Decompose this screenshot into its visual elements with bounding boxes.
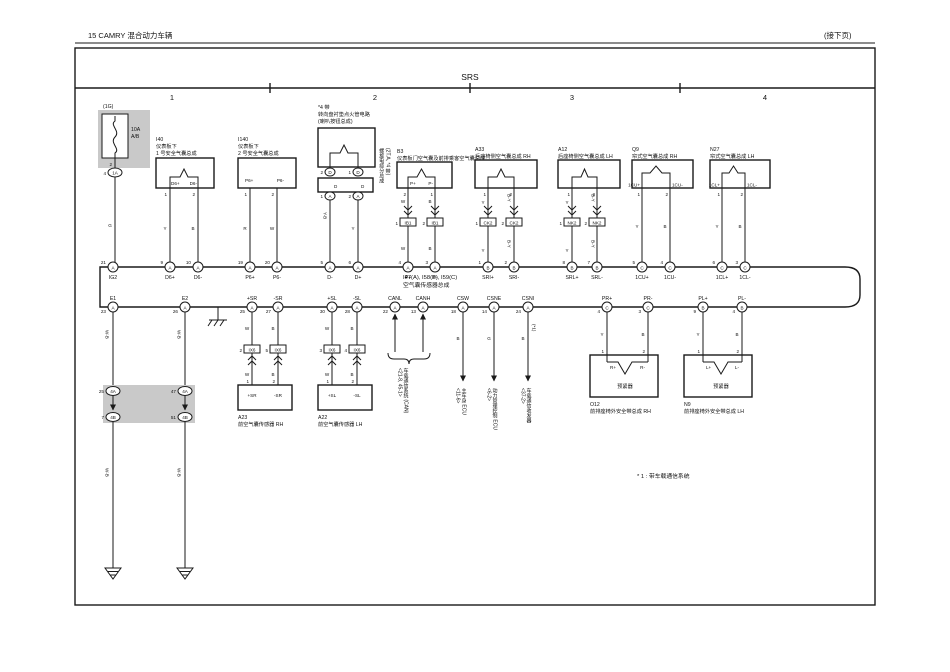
terminal-label: D	[334, 184, 338, 189]
terminal: PR+	[602, 296, 612, 302]
pin-num: 1	[717, 192, 720, 197]
wire-color: W-B	[104, 330, 110, 339]
terminal-label: D	[361, 184, 365, 189]
terminal: D+	[355, 275, 362, 281]
wire-color: Y-B	[322, 212, 328, 219]
component-label: 前排座椅外安全带总成 LH	[684, 407, 744, 415]
terminal-label: L-	[735, 365, 740, 370]
conn-num: 2	[501, 221, 504, 226]
pin-num: 2	[665, 192, 668, 197]
pin-num: 1	[637, 192, 640, 197]
wire-color: B	[191, 226, 194, 231]
spiral-cable-side-note: (2T.A, *4 带) 螺旋电缆分总成	[378, 148, 391, 183]
component-code: I140	[238, 137, 248, 143]
pin-num: 2	[736, 349, 739, 354]
component-label: 前空气囊传感器 LH	[318, 420, 363, 428]
pin-num: 4	[398, 260, 401, 265]
ground-symbol	[177, 568, 193, 579]
pin-num: 2	[403, 192, 406, 197]
component-code: N9	[684, 402, 691, 408]
wire-color: W-B	[176, 330, 182, 339]
terminal: PL-	[738, 296, 746, 302]
terminal: +SL	[327, 296, 336, 302]
fuse-conn-num: 4	[103, 171, 106, 176]
pin-num: 21	[101, 260, 107, 265]
conn-num: 25	[99, 389, 105, 394]
ecu-case-ground	[208, 307, 227, 326]
component-code: A33	[475, 147, 484, 153]
conn-letter: B	[512, 266, 515, 271]
terminal-label: 1CU-	[672, 183, 683, 188]
power-management-ecu-link-label: 动力管理控制 ECU <6-2>	[485, 388, 498, 430]
terminal: -SR	[274, 296, 283, 302]
terminal-label: +SL	[328, 393, 337, 398]
conn-num: 2	[584, 221, 587, 226]
pin-num: 8	[562, 260, 565, 265]
terminal-label: L+	[706, 365, 712, 370]
footnote-marker: (*1)	[531, 324, 537, 331]
component-a12: A12 后座椅侧空气囊总成 LH 1 2 Y NK2 NK2 1 2 Y	[558, 147, 620, 262]
can-bus-link-label: 车载通信系统 (CAN) <21-8, 45-1>	[396, 368, 409, 413]
squib-symbol	[572, 169, 597, 188]
terminal: PL+	[698, 296, 707, 302]
pin-num: 13	[411, 309, 417, 314]
terminal-label: -SR	[274, 393, 283, 398]
terminal: E2	[182, 296, 188, 302]
wire-color: B	[641, 332, 644, 337]
terminal: D-	[327, 275, 333, 281]
terminal-label: R-	[640, 365, 645, 370]
terminal: +SR	[247, 296, 257, 302]
wire-color: Y	[600, 332, 603, 337]
pin-num: 1	[164, 192, 167, 197]
pretensioner-circuits: Y B Y B 1 2 R+ R- 预紧器 O12 前排座椅外安全带总成 RH …	[590, 312, 752, 415]
component-label: 仪表板下	[238, 142, 259, 150]
conn-num: 1	[395, 221, 398, 226]
terminal: CANH	[416, 296, 431, 302]
pin-num: 23	[101, 309, 107, 314]
wire-color: R	[243, 226, 247, 231]
terminal-label: D6-	[190, 181, 198, 186]
wire-color: B	[350, 326, 353, 331]
conn-num: 5	[265, 348, 268, 353]
fuse-conn-letter: 1A	[112, 171, 119, 176]
note-line: 转向盘衬垫点火管电路	[318, 110, 371, 118]
pin-num: 6	[712, 260, 715, 265]
inline-connector: CK2	[510, 221, 519, 226]
component-o12: 1 2 R+ R- 预紧器 O12 前排座椅外安全带总成 RH	[590, 349, 658, 415]
pin-num: 4	[660, 260, 663, 265]
wire-color: W-B	[104, 468, 110, 477]
wire-color: G	[108, 223, 112, 228]
fuse-name: A/B	[131, 134, 140, 140]
fuse-connector-label: (1G)	[103, 104, 114, 110]
terminal: CSNE	[487, 296, 502, 302]
terminal: E1	[110, 296, 116, 302]
ecu-name: 空气囊传感器总成	[403, 281, 450, 289]
component-label: 仪表板下	[156, 142, 177, 150]
component-code: O12	[590, 402, 600, 408]
note-line: *4 带	[318, 104, 330, 111]
brace	[388, 353, 430, 364]
pin-num: 1	[430, 192, 433, 197]
terminal: P6+	[245, 275, 254, 281]
pin-num: 18	[451, 309, 457, 314]
inline-connector: IX6	[329, 348, 336, 353]
conn-num: 1	[475, 221, 478, 226]
component-code: B3	[397, 149, 403, 155]
component-label: 前空气囊传感器 RH	[238, 420, 284, 428]
wire-color: Y	[481, 248, 484, 253]
communication-links: B G B	[388, 312, 528, 381]
wire-color: B	[521, 336, 524, 341]
pin-num: 26	[173, 309, 179, 314]
conn-letter: 4A	[182, 389, 189, 394]
wire-color: Y	[635, 224, 638, 229]
ecu-bottom-pins: 23AE1 26AE2 25A+SR 27A-SR 30A+SL 28A-SL …	[101, 296, 747, 314]
component-a22: 1 2 +SL -SL A22 前空气囊传感器 LH	[318, 379, 372, 428]
pretensioner-label: 预紧器	[617, 382, 633, 390]
terminal-label: 1CL+	[709, 183, 720, 188]
component-n9: 1 2 L+ L- 预紧器 N9 前排座椅外安全带总成 LH	[684, 349, 752, 415]
conn-num: 2	[239, 348, 242, 353]
inline-connector: IB1	[432, 221, 439, 226]
schematic-canvas: SRS 1 2 3 4 (1G) 10A A/B 2 4 1A G I40 仪表…	[0, 0, 950, 672]
wire-color: Y	[565, 200, 568, 205]
wire-color: B	[350, 372, 353, 377]
wire-color: B-Y	[590, 194, 596, 202]
wire-color: B	[663, 224, 666, 229]
conn-letter: 4B	[182, 415, 188, 420]
terminal: CANL	[388, 296, 402, 302]
telematics-link-label: 车载通信收发器 <37-2>	[519, 388, 532, 423]
system-title: SRS	[461, 72, 479, 82]
footnote: * 1 : 带车载通信系统	[637, 472, 690, 480]
section-4: 4	[763, 93, 767, 102]
pin-num: 14	[482, 309, 488, 314]
pin-num: 1	[478, 260, 481, 265]
pin-num: 22	[383, 309, 389, 314]
pin-num: 1	[601, 349, 604, 354]
terminal: SRI+	[482, 275, 494, 281]
squib-symbol	[330, 145, 358, 167]
wire-color: B-Y	[506, 194, 512, 202]
conn-num: 7	[101, 415, 104, 420]
component-code: N27	[710, 147, 720, 153]
component-label: 帘式空气囊总成 RH	[632, 152, 678, 160]
pin-num: 2	[504, 260, 507, 265]
terminal: 1CL-	[739, 275, 751, 281]
inline-connector: NK2	[568, 221, 577, 226]
pin-num: 4	[732, 309, 735, 314]
pin-num: 2	[642, 349, 645, 354]
wire-color: W	[245, 326, 250, 331]
ground-symbol	[105, 568, 121, 579]
terminal: P+	[405, 275, 412, 281]
terminal-label: P-	[428, 181, 433, 186]
component-b3: B3 仪表板门空气囊及前排乘客空气囊总成 P+ P- 2 1 W B IB1 I…	[395, 149, 485, 262]
pin-num: 27	[266, 309, 272, 314]
main-body-ecu-link-label: 主车身 ECU <11-6>	[454, 388, 467, 415]
component-code: A12	[558, 147, 567, 153]
fuse-block: (1G) 10A A/B 2 4 1A G	[98, 104, 150, 262]
conn-letter: B	[486, 266, 489, 271]
component-a23: 1 2 +SR -SR A23 前空气囊传感器 RH	[238, 379, 292, 428]
pin-num: 1	[483, 192, 486, 197]
terminal: SRL-	[591, 275, 603, 281]
pin-num: 2	[320, 170, 323, 175]
pin-num: 2	[348, 194, 351, 199]
conn-num: 51	[171, 415, 177, 420]
airbag-ecu: I47(A), I58(B), I59(C) 空气囊传感器总成 21AIG2 9…	[100, 260, 860, 326]
conn-letter: 4A	[110, 389, 117, 394]
terminal: P-	[432, 275, 437, 281]
component-label: 仪表板门空气囊及前排乘客空气囊总成	[397, 154, 485, 162]
terminal: 1CU-	[664, 275, 676, 281]
wire-color: G	[487, 336, 491, 341]
pin-num: 1	[697, 349, 700, 354]
component-n27: N27 帘式空气囊总成 LH 1CL+ 1CL- 1 2 Y B	[709, 147, 770, 262]
pin-num: 3	[425, 260, 428, 265]
wire-color: W	[325, 372, 330, 377]
terminal: -SL	[353, 296, 361, 302]
section-2: 2	[373, 93, 377, 102]
terminal-label: 1CU+	[628, 183, 640, 188]
squib-symbol	[488, 169, 514, 188]
terminal: SRI-	[509, 275, 520, 281]
terminal: D6-	[194, 275, 203, 281]
pin-num: 20	[265, 260, 271, 265]
wire-color: B	[738, 224, 741, 229]
pin-num: 10	[186, 260, 192, 265]
pin-num: 9	[160, 260, 163, 265]
wire-color: Y	[696, 332, 699, 337]
terminal: CSW	[457, 296, 469, 302]
note-line: (喇叭按钮总成)	[318, 117, 353, 125]
wire-color: Y	[163, 226, 166, 231]
fuse-pin-num: 2	[109, 162, 112, 167]
pin-num: 28	[345, 309, 351, 314]
component-code: Q9	[632, 147, 639, 153]
component-label: 帘式空气囊总成 LH	[710, 152, 755, 160]
component-code: I40	[156, 137, 163, 143]
terminal: CSNI	[522, 296, 534, 302]
wire-color: W	[245, 372, 250, 377]
component-code: A23	[238, 415, 247, 421]
wire-color: W	[401, 199, 406, 204]
inline-connector: CK2	[484, 221, 493, 226]
conn-letter: B	[740, 306, 743, 311]
inline-connector: IX6	[354, 348, 361, 353]
terminal-label: 1CL-	[747, 183, 757, 188]
component-code: A22	[318, 415, 327, 421]
front-sensor-circuits: W B W B IX62 IX65 IX63 IX64 W B W B 1 2 …	[238, 312, 372, 428]
conn-letter: 4B	[110, 415, 116, 420]
pin-num: 7	[587, 260, 590, 265]
terminal: 1CU+	[635, 275, 648, 281]
conn-num: 3	[319, 348, 322, 353]
component-label: 前排座椅外安全带总成 RH	[590, 407, 651, 415]
pin-num: 2	[271, 192, 274, 197]
component-label: 1 号安全气囊总成	[156, 149, 197, 157]
pin-num: 1	[326, 379, 329, 384]
wire-color: B	[271, 372, 274, 377]
wire-color: W-B	[176, 468, 182, 477]
pin-num: 19	[238, 260, 244, 265]
terminal: PR-	[644, 296, 653, 302]
page-frame: SRS 1 2 3 4	[75, 43, 875, 605]
inline-connector: NK2	[593, 221, 602, 226]
wire-color: B-Y	[590, 240, 596, 248]
component-label: 后座椅侧空气囊总成 RH	[475, 152, 531, 160]
wire-color: B	[428, 199, 431, 204]
inline-connector: IB1	[405, 221, 412, 226]
wire-color: B	[428, 246, 431, 251]
wire-color: B	[735, 332, 738, 337]
conn-letter: B	[570, 266, 573, 271]
terminal-label: P6+	[245, 178, 254, 183]
terminal-label: D6+	[171, 181, 180, 186]
conn-letter: B	[595, 266, 598, 271]
pin-num: 9	[693, 309, 696, 314]
pin-num: 24	[516, 309, 522, 314]
pin-num: 2	[740, 192, 743, 197]
terminal-label: R+	[610, 365, 616, 370]
terminal: D6+	[165, 275, 175, 281]
terminal: 1CL+	[716, 275, 729, 281]
terminal-label: -SL	[353, 393, 361, 398]
pin-num: 6	[348, 260, 351, 265]
component-label: 后座椅侧空气囊总成 LH	[558, 152, 613, 160]
component-q9: Q9 帘式空气囊总成 RH 1CU+ 1CU- 1 2 Y B	[628, 147, 693, 262]
conn-num: 2	[422, 221, 425, 226]
pin-num: 1	[244, 192, 247, 197]
wire-color: B-Y	[506, 240, 512, 248]
wire-color: W	[325, 326, 330, 331]
conn-letter: B	[701, 306, 704, 311]
pin-num: 1	[348, 170, 351, 175]
terminal-label: P+	[410, 181, 416, 186]
wiring-diagram-page: SRS 1 2 3 4 (1G) 10A A/B 2 4 1A G I40 仪表…	[0, 0, 950, 672]
conn-num: 4	[344, 348, 347, 353]
wire-color: Y	[715, 224, 718, 229]
page-header-right: (接下页)	[824, 30, 852, 41]
pin-num: 5	[632, 260, 635, 265]
component-label: 2 号安全气囊总成	[238, 149, 279, 157]
page-header-left: 15 CAMRY 混合动力车辆	[88, 30, 172, 41]
squib-symbol	[642, 166, 670, 180]
conn-num: 47	[171, 389, 177, 394]
pin-num: 1	[567, 192, 570, 197]
wire-color: W	[270, 226, 275, 231]
pin-num: 2	[192, 192, 195, 197]
inline-connector: IX6	[275, 348, 282, 353]
conn-num: 1	[559, 221, 562, 226]
component-i140: I140 仪表板下 2 号安全气囊总成 P6+ P6- 1 2 R W	[238, 137, 296, 262]
pretensioner-label: 预紧器	[713, 382, 729, 390]
pin-num: 2	[272, 379, 275, 384]
pin-num: 5	[320, 260, 323, 265]
section-3: 3	[570, 93, 574, 102]
wire-color: Y	[481, 200, 484, 205]
component-i40: I40 仪表板下 1 号安全气囊总成 D6+ D6- 1 2 Y B	[156, 137, 214, 262]
section-1: 1	[170, 93, 174, 102]
wire-color: B	[271, 326, 274, 331]
pin-num: 3	[735, 260, 738, 265]
component-steering-pad-spiral-cable: *4 带 转向盘衬垫点火管电路 (喇叭按钮总成) 2 D 1 D D D 1 A…	[318, 104, 375, 262]
squib-symbol	[722, 166, 745, 180]
pin-num: 1	[246, 379, 249, 384]
terminal-label: +SR	[247, 393, 257, 398]
pin-num: 1	[320, 194, 323, 199]
pin-num: 30	[320, 309, 326, 314]
pin-num: 4	[597, 309, 600, 314]
pin-num: 25	[240, 309, 246, 314]
terminal-label: P6-	[277, 178, 285, 183]
wire-color: Y	[351, 226, 354, 231]
terminal: SRL+	[565, 275, 578, 281]
wire-color: B	[456, 336, 459, 341]
pin-num: 2	[351, 379, 354, 384]
terminal: IG2	[109, 275, 117, 281]
ground-circuit: 25 4A 47 4A 7 4B 51 4B	[99, 312, 195, 579]
pin-num: 3	[638, 309, 641, 314]
inline-connector: IX6	[249, 348, 256, 353]
fuse-rating: 10A	[131, 127, 141, 133]
wire-color: Y	[565, 248, 568, 253]
wire-color: W	[401, 246, 406, 251]
terminal: P6-	[273, 275, 281, 281]
